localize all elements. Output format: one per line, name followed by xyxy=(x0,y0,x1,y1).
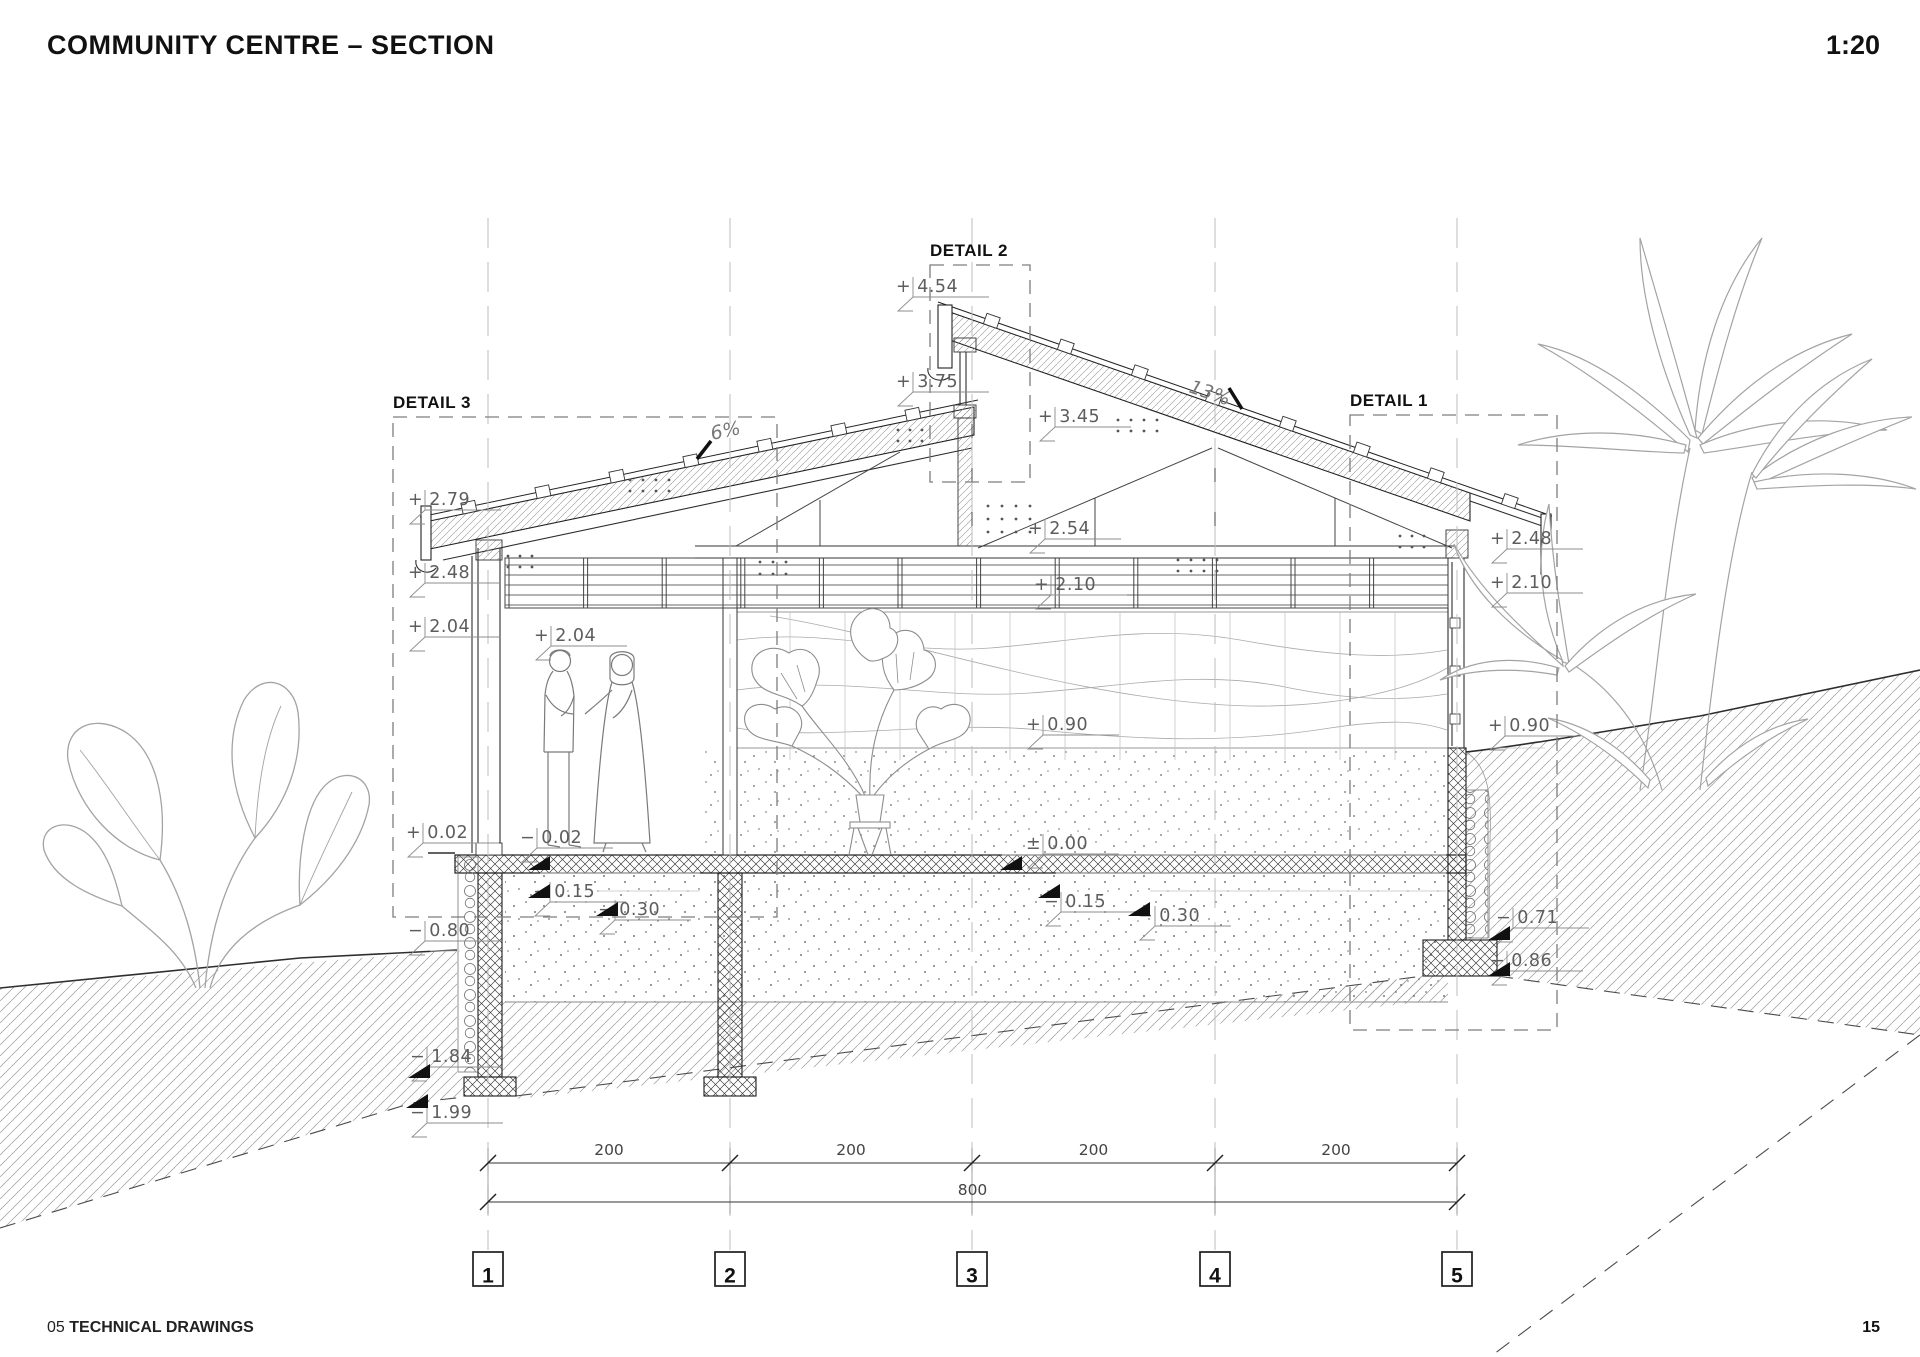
level-label: + 2.04 xyxy=(408,617,470,637)
footer-chapter: 05 TECHNICAL DRAWINGS xyxy=(47,1319,254,1337)
page-number: 15 xyxy=(1862,1319,1880,1337)
level-label: − 0.80 xyxy=(408,921,470,941)
grid-bubble-label: 1 xyxy=(482,1265,494,1288)
level-label: + 0.90 xyxy=(1026,715,1088,735)
level-marker: − 1.99 xyxy=(410,1103,503,1137)
sheet: COMMUNITY CENTRE – SECTION 1:20 xyxy=(0,0,1920,1357)
plant-left xyxy=(43,682,369,988)
level-label: + 0.02 xyxy=(406,823,468,843)
grid-bubble-label: 4 xyxy=(1209,1265,1221,1288)
level-marker: + 2.48 xyxy=(408,563,501,597)
bay-dimension: 200 xyxy=(594,1141,624,1159)
grid-bubble-label: 3 xyxy=(966,1265,978,1288)
grid-bubble-label: 5 xyxy=(1451,1265,1463,1288)
slope-label-left: 6% xyxy=(708,417,742,445)
level-marker: + 2.04 xyxy=(408,617,501,651)
footer-chapter-title: TECHNICAL DRAWINGS xyxy=(69,1319,254,1336)
level-label: − 0.71 xyxy=(1496,908,1558,928)
level-label: + 3.45 xyxy=(1038,407,1100,427)
level-label: + 2.54 xyxy=(1028,519,1090,539)
section-drawing: 12345 DETAIL 3DETAIL 2DETAIL 1 200200200… xyxy=(0,0,1920,1357)
level-label: ± 0.00 xyxy=(1026,834,1088,854)
level-label: + 2.48 xyxy=(1490,529,1552,549)
total-dimension: 800 xyxy=(958,1181,988,1199)
level-label: + 4.54 xyxy=(896,277,958,297)
bay-dimension: 200 xyxy=(836,1141,866,1159)
level-label: + 2.10 xyxy=(1490,573,1552,593)
floor-slab xyxy=(428,853,1466,873)
level-label: + 2.79 xyxy=(408,490,470,510)
level-marker: + 2.10 xyxy=(1490,573,1583,607)
level-label: + 0.90 xyxy=(1488,716,1550,736)
grid-bubble-label: 2 xyxy=(724,1265,736,1288)
level-marker: + 3.45 xyxy=(1038,407,1131,441)
level-marker: + 2.04 xyxy=(534,626,627,660)
level-marker: + 2.48 xyxy=(1490,529,1583,563)
level-label: + 2.04 xyxy=(534,626,596,646)
floor-subbase xyxy=(505,873,1448,1002)
terrain-right xyxy=(1466,670,1920,1357)
level-label: − 0.86 xyxy=(1490,951,1552,971)
detail-label: DETAIL 2 xyxy=(930,241,1008,260)
footer-chapter-number: 05 xyxy=(47,1319,65,1336)
level-label: + 2.48 xyxy=(408,563,470,583)
terrain-left xyxy=(0,950,464,1228)
level-label: + 2.10 xyxy=(1034,575,1096,595)
bay-dimension: 200 xyxy=(1079,1141,1109,1159)
detail-label: DETAIL 3 xyxy=(393,393,471,412)
detail-label: DETAIL 1 xyxy=(1350,391,1428,410)
level-marker: + 2.54 xyxy=(1028,519,1121,553)
bay-dimension: 200 xyxy=(1321,1141,1351,1159)
level-label: + 3.75 xyxy=(896,372,958,392)
level-label: − 0.02 xyxy=(520,828,582,848)
level-label: − 1.84 xyxy=(410,1047,472,1067)
figure-right xyxy=(585,652,650,852)
clerestory-louver-band xyxy=(505,546,1455,608)
wall-left xyxy=(472,540,502,855)
figure-left xyxy=(544,650,581,847)
